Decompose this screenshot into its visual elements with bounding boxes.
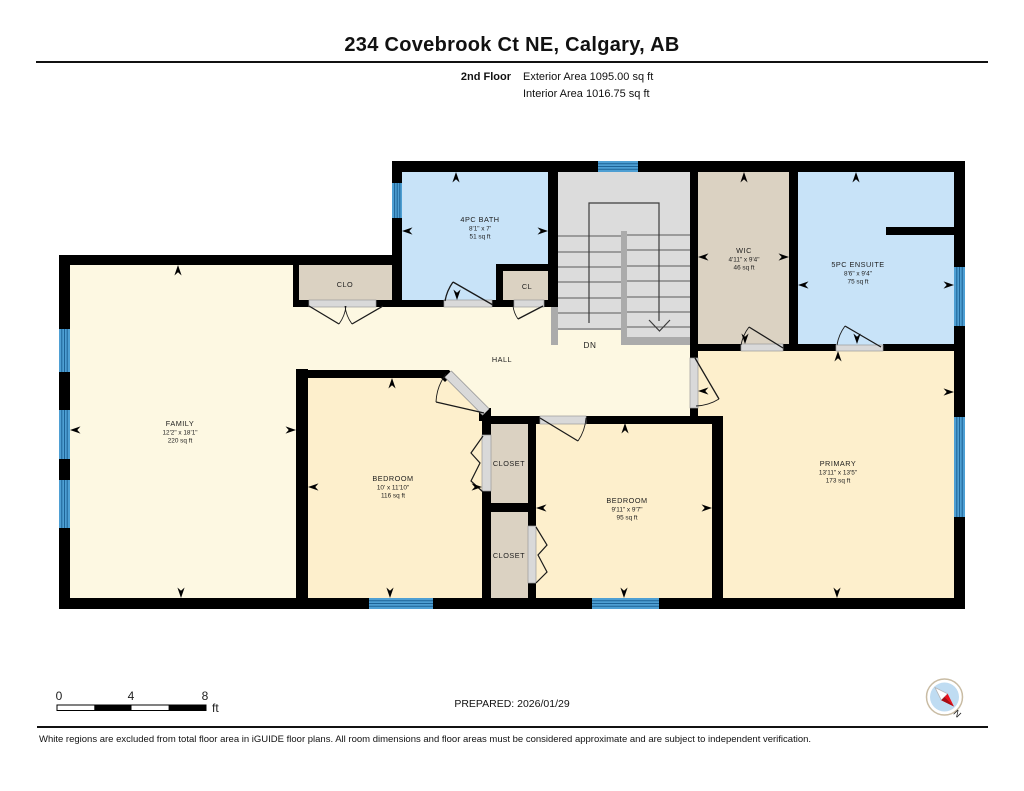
svg-text:46 sq ft: 46 sq ft xyxy=(734,265,755,272)
svg-text:CL: CL xyxy=(522,282,532,291)
svg-text:8'6" x 9'4": 8'6" x 9'4" xyxy=(844,271,872,278)
svg-text:10' x 11'10": 10' x 11'10" xyxy=(377,485,409,492)
svg-text:4: 4 xyxy=(128,689,135,703)
svg-text:95 sq ft: 95 sq ft xyxy=(617,515,638,522)
svg-text:DN: DN xyxy=(583,341,596,350)
svg-text:BEDROOM: BEDROOM xyxy=(372,474,413,483)
svg-text:PRIMARY: PRIMARY xyxy=(820,459,857,468)
svg-text:116 sq ft: 116 sq ft xyxy=(381,493,405,500)
svg-text:5PC ENSUITE: 5PC ENSUITE xyxy=(831,260,884,269)
svg-text:WIC: WIC xyxy=(736,246,752,255)
svg-text:4PC BATH: 4PC BATH xyxy=(460,215,499,224)
svg-text:13'11" x 13'5": 13'11" x 13'5" xyxy=(819,470,857,477)
svg-text:75 sq ft: 75 sq ft xyxy=(848,279,869,286)
svg-text:FAMILY: FAMILY xyxy=(166,419,194,428)
svg-text:8: 8 xyxy=(202,689,209,703)
svg-text:0: 0 xyxy=(56,689,63,703)
svg-text:12'2" x 18'1": 12'2" x 18'1" xyxy=(162,430,197,437)
svg-text:51 sq ft: 51 sq ft xyxy=(470,234,491,241)
svg-text:9'11" x 9'7": 9'11" x 9'7" xyxy=(611,507,642,514)
svg-text:CLOSET: CLOSET xyxy=(493,459,525,468)
svg-text:8'1" x 7': 8'1" x 7' xyxy=(469,226,491,233)
svg-text:CLO: CLO xyxy=(337,280,354,289)
svg-text:220 sq ft: 220 sq ft xyxy=(168,438,193,445)
svg-text:HALL: HALL xyxy=(492,355,512,364)
svg-text:BEDROOM: BEDROOM xyxy=(606,496,647,505)
svg-text:ft: ft xyxy=(212,701,219,715)
svg-text:CLOSET: CLOSET xyxy=(493,551,525,560)
svg-text:173 sq ft: 173 sq ft xyxy=(826,478,851,485)
svg-text:4'11" x 9'4": 4'11" x 9'4" xyxy=(728,257,759,264)
